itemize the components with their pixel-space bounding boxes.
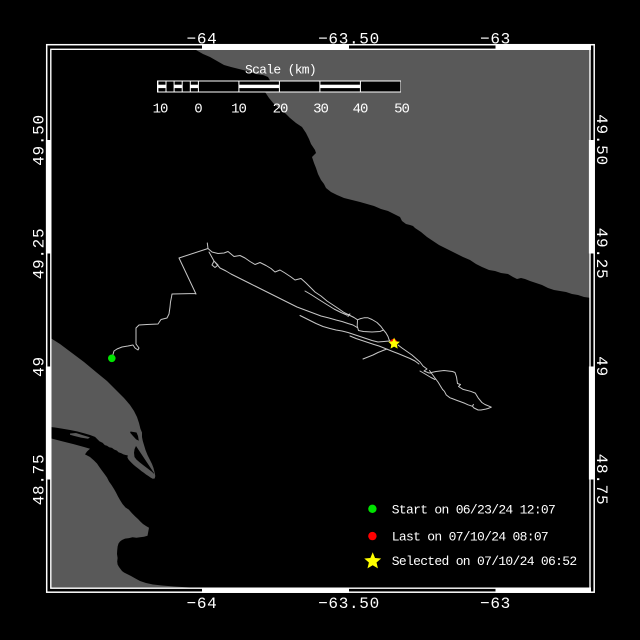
svg-text:49.25: 49.25 <box>31 228 49 280</box>
svg-text:−64: −64 <box>187 31 218 49</box>
svg-text:10: 10 <box>153 102 168 118</box>
svg-text:0: 0 <box>194 102 202 118</box>
svg-text:−63.50: −63.50 <box>318 31 380 49</box>
svg-text:48.75: 48.75 <box>31 454 49 506</box>
svg-text:Start on 06/23/24 12:07: Start on 06/23/24 12:07 <box>392 502 555 517</box>
svg-text:Last on 07/10/24 08:07: Last on 07/10/24 08:07 <box>392 530 548 545</box>
svg-text:−64: −64 <box>187 595 218 613</box>
svg-text:−63.50: −63.50 <box>318 595 380 613</box>
svg-text:40: 40 <box>353 102 368 118</box>
svg-text:49.50: 49.50 <box>31 114 49 166</box>
svg-text:49.50: 49.50 <box>592 114 610 166</box>
svg-text:49: 49 <box>592 356 610 377</box>
svg-text:20: 20 <box>273 102 288 118</box>
svg-text:Scale (km): Scale (km) <box>245 63 316 78</box>
svg-text:−63: −63 <box>480 31 511 49</box>
svg-text:Selected on 07/10/24 06:52: Selected on 07/10/24 06:52 <box>392 554 577 569</box>
svg-text:48.75: 48.75 <box>592 454 610 506</box>
svg-text:50: 50 <box>394 102 409 118</box>
svg-text:49: 49 <box>31 356 49 377</box>
svg-text:30: 30 <box>313 102 328 118</box>
svg-text:−63: −63 <box>480 595 511 613</box>
svg-text:10: 10 <box>231 102 246 118</box>
svg-text:49.25: 49.25 <box>592 228 610 280</box>
